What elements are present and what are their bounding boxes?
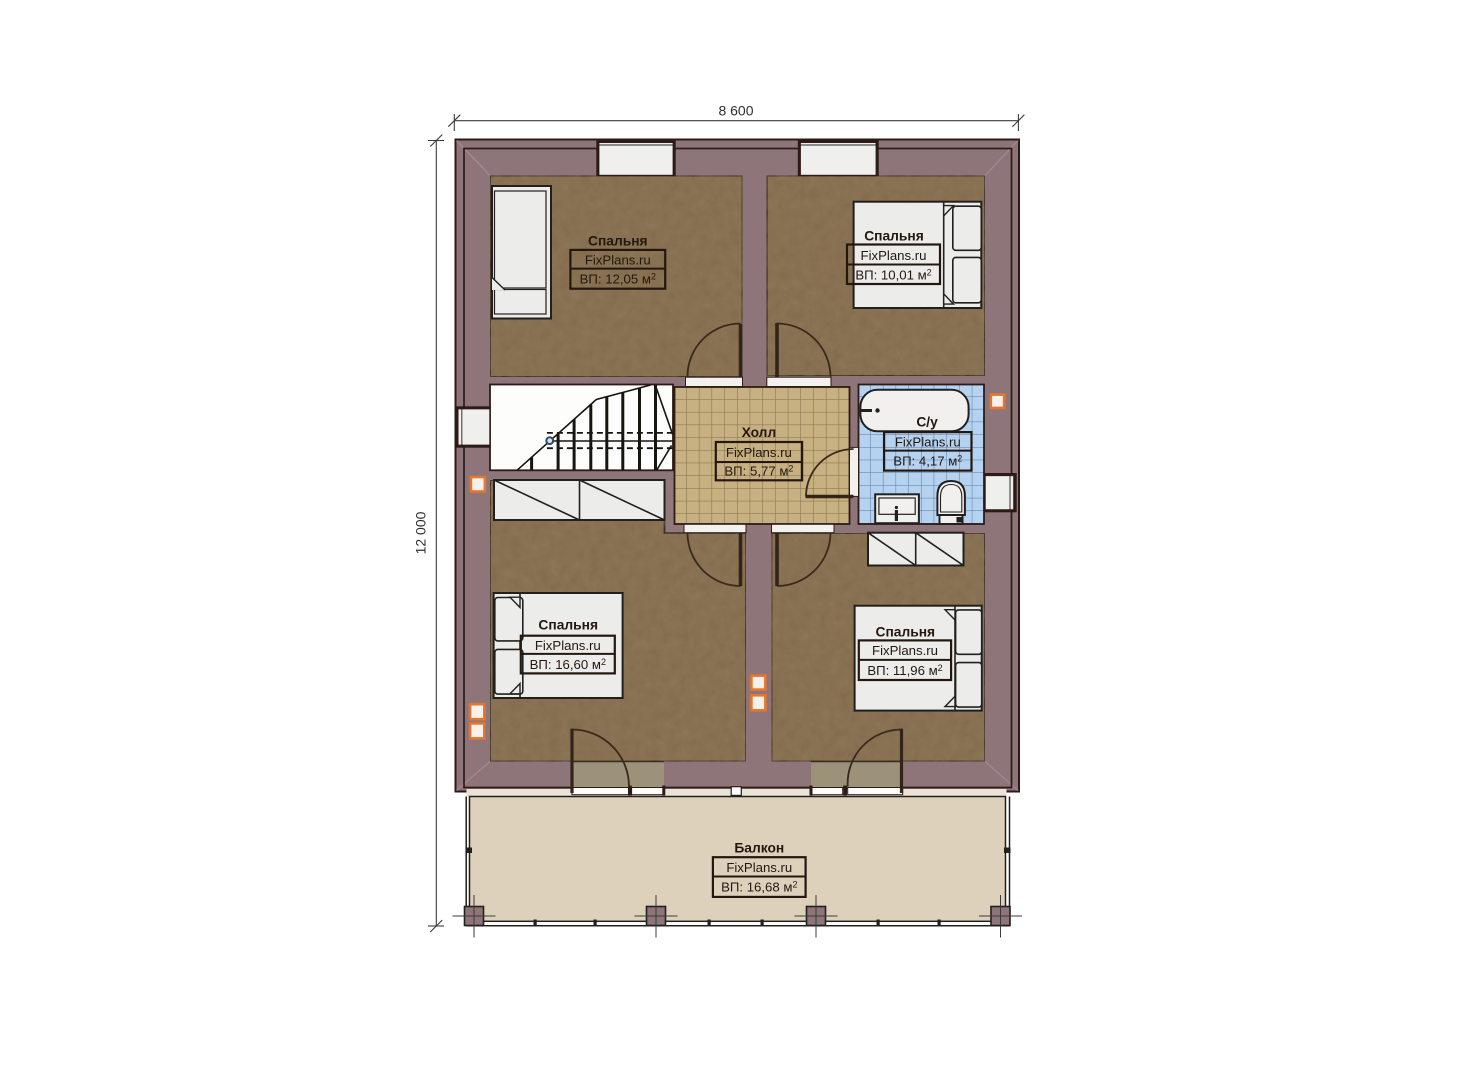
svg-text:Спальня: Спальня [864, 228, 924, 243]
svg-text:FixPlans.ru: FixPlans.ru [861, 248, 927, 263]
svg-text:FixPlans.ru: FixPlans.ru [726, 445, 792, 460]
svg-text:12 000: 12 000 [413, 511, 429, 554]
svg-text:FixPlans.ru: FixPlans.ru [895, 434, 961, 449]
svg-text:ВП: 12,05 м2: ВП: 12,05 м2 [580, 272, 656, 287]
svg-text:Спальня: Спальня [588, 233, 648, 248]
svg-text:FixPlans.ru: FixPlans.ru [535, 638, 601, 653]
svg-text:FixPlans.ru: FixPlans.ru [872, 643, 938, 658]
svg-text:Холл: Холл [742, 425, 777, 440]
svg-text:ВП: 16,60 м2: ВП: 16,60 м2 [530, 657, 606, 672]
svg-text:С/у: С/у [916, 414, 938, 429]
svg-text:ВП: 11,96 м2: ВП: 11,96 м2 [867, 663, 942, 678]
svg-text:ВП: 16,68 м2: ВП: 16,68 м2 [721, 880, 797, 895]
svg-text:ВП: 10,01 м2: ВП: 10,01 м2 [855, 268, 931, 283]
svg-text:FixPlans.ru: FixPlans.ru [585, 252, 651, 267]
svg-text:ВП: 4,17 м2: ВП: 4,17 м2 [893, 454, 962, 469]
svg-text:Спальня: Спальня [875, 624, 935, 639]
svg-text:Спальня: Спальня [538, 618, 598, 633]
svg-text:FixPlans.ru: FixPlans.ru [726, 860, 792, 875]
svg-text:ВП: 5,77 м2: ВП: 5,77 м2 [724, 464, 793, 479]
svg-text:Балкон: Балкон [734, 841, 784, 856]
svg-text:8 600: 8 600 [718, 103, 753, 119]
